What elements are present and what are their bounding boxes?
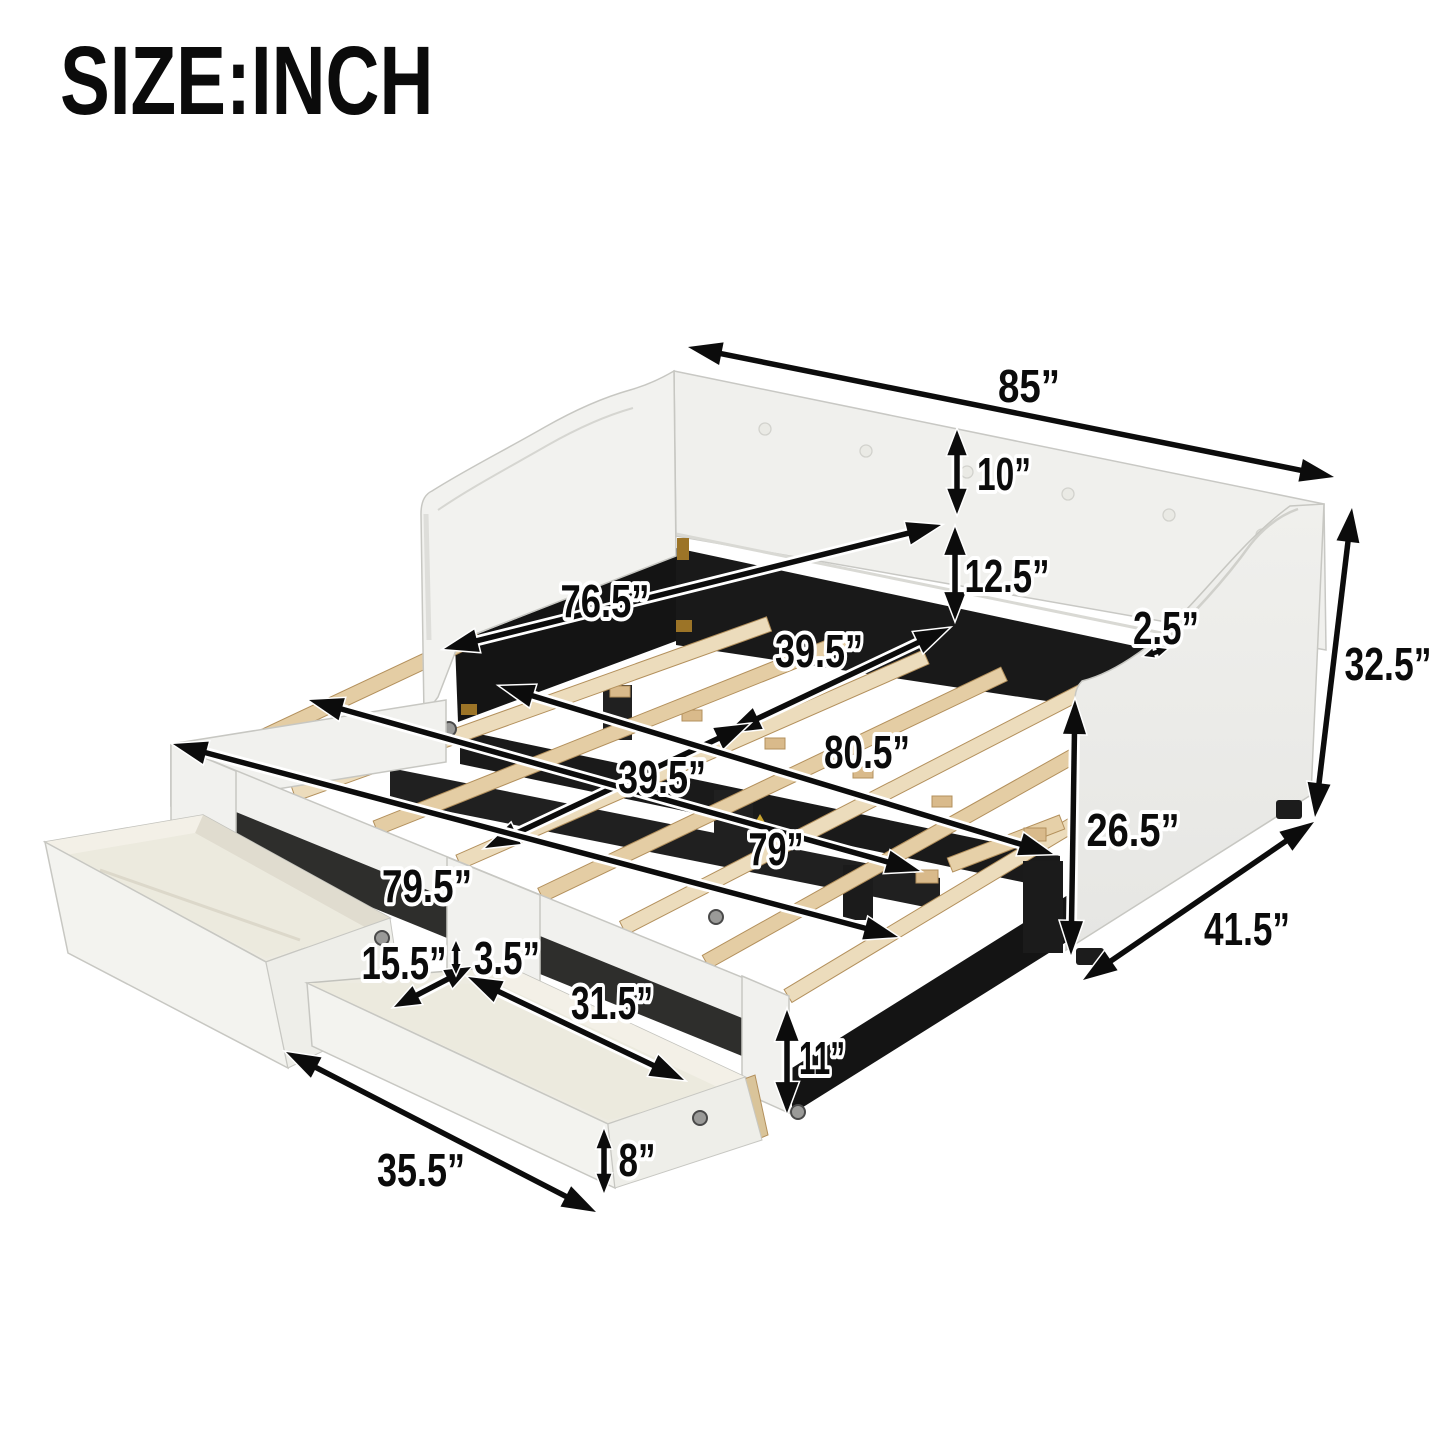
svg-text:15.5”: 15.5” bbox=[362, 937, 447, 989]
svg-text:80.5”: 80.5” bbox=[824, 726, 910, 778]
svg-text:79”: 79” bbox=[749, 823, 804, 875]
svg-text:10”: 10” bbox=[977, 448, 1031, 500]
svg-text:39.5”: 39.5” bbox=[618, 751, 706, 803]
svg-text:12.5”: 12.5” bbox=[965, 550, 1050, 602]
svg-text:2.5”: 2.5” bbox=[1133, 602, 1199, 654]
svg-text:26.5”: 26.5” bbox=[1087, 804, 1180, 856]
svg-text:41.5”: 41.5” bbox=[1204, 903, 1290, 955]
svg-text:31.5”: 31.5” bbox=[571, 977, 653, 1029]
svg-text:79.5”: 79.5” bbox=[382, 860, 472, 912]
svg-text:76.5”: 76.5” bbox=[561, 575, 650, 627]
svg-text:39.5”: 39.5” bbox=[775, 625, 863, 677]
svg-text:85”: 85” bbox=[998, 360, 1060, 412]
svg-text:8”: 8” bbox=[619, 1134, 656, 1186]
svg-text:11”: 11” bbox=[799, 1032, 845, 1084]
svg-text:32.5”: 32.5” bbox=[1345, 638, 1432, 690]
svg-text:3.5”: 3.5” bbox=[474, 932, 540, 984]
svg-text:35.5”: 35.5” bbox=[377, 1144, 465, 1196]
svg-text:SIZE:INCH: SIZE:INCH bbox=[60, 28, 433, 136]
